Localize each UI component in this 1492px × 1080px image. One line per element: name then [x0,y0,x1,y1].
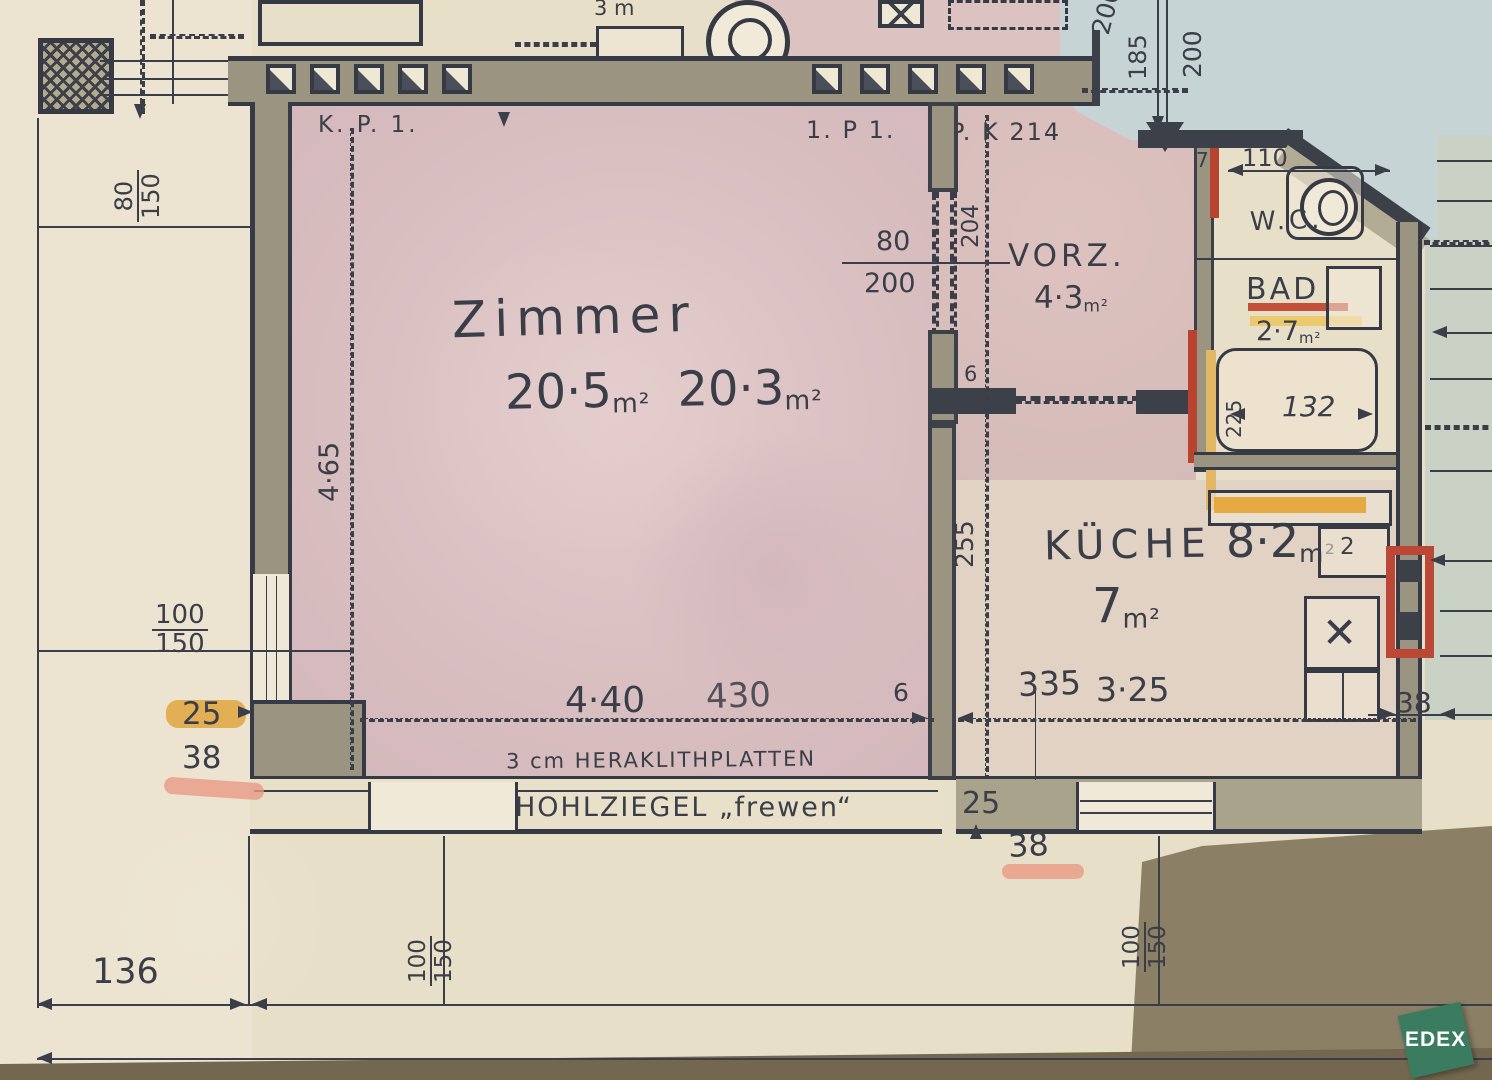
zimmer-area1-unit: m² [612,388,651,420]
arrow-right-icon [1358,408,1373,420]
arrow-down-icon [134,104,146,119]
dim-150: 150 [152,629,208,658]
wall-label-1p1: 1. P 1. [806,116,896,144]
dim-136: 136 [92,952,159,992]
kueche-width-dim-line [958,718,1416,722]
dim-kueche-335: 335 [1017,663,1081,704]
dim-ext-line [1158,836,1160,1006]
arrow-left-icon [37,1052,52,1064]
zimmer-area2-value: 20·3 [677,360,785,418]
radiator-cell [1398,612,1420,640]
wash-stairs-green [1425,238,1492,720]
window-pier-icon [266,64,296,94]
arrow-left-icon [1440,708,1455,720]
zimmer-width-dim-line [360,718,934,722]
balcony-line [100,94,230,96]
dim-wall6-bottom: 6 [893,678,909,707]
window-bottom-right [1076,782,1216,830]
window-pier-icon [1004,64,1034,94]
window-left-pane [266,576,267,700]
dim-left-80-150: 80 150 [112,170,164,222]
wall-red-highlight [1210,138,1219,218]
dim-vorz-255: 255 [950,520,979,568]
window-pane-line [1080,812,1212,814]
upper-furniture [948,0,1068,30]
window-pier-icon [354,64,384,94]
cabinet-divider [1342,672,1344,720]
wall-bad-bottom [1194,452,1420,470]
dim-100: 100 [405,939,431,983]
dim-bottom-left-100-150: 100 150 [406,936,456,986]
stair-tread [1430,288,1492,290]
note-hohlziegel: HOHLZIEGEL „frewen“ [515,792,853,823]
zimmer-area2-unit: m² [784,385,823,417]
door-dim-line [842,262,1010,264]
stair-tread [1437,200,1492,202]
dim-left-38: 38 [182,740,221,776]
dim-line-80-150 [37,226,253,228]
window-pier-icon [310,64,340,94]
dim-ext-left [37,118,39,1008]
counter-yellow-highlight [1214,497,1366,513]
window-pier-icon [442,64,472,94]
vorz-area-unit: m² [1083,297,1108,317]
dim-left-100-150: 100 150 [152,602,208,659]
arrow-right-icon [238,706,253,718]
room-kueche-label: KÜCHE [1044,521,1212,570]
kitchen-door-dash [1016,396,1142,404]
dim-top-200b: 200 [1178,30,1207,78]
stair-tread [1430,470,1492,472]
wall-yellow-highlight [1206,350,1216,510]
arrow-left-icon [1432,326,1447,338]
note-heraklith: 3 cm HERAKLITHPLATTEN [506,747,816,774]
dim-ext-line [1166,0,1168,126]
window-left-pane [276,576,277,700]
window-pier-icon [812,64,842,94]
radiator-cell [1398,560,1420,582]
arrow-left-icon [1230,408,1245,420]
room-zimmer-areas: 20·5m² 20·3m² [505,359,824,421]
wash-stairs-green-top [1437,135,1492,245]
floor-plan: K K. P. 1. 1. P 1. P. K 214 3 m 3 cm HER… [0,0,1492,1080]
overall-dim-line-2 [37,1058,1492,1060]
dim-zimmer-440: 4·40 [565,680,645,721]
dim-mid-25: 25 [962,786,1000,821]
dim-wall6-top: 6 [964,362,977,386]
dim-top-185: 185 [1124,34,1152,80]
upper-outline-dash [1082,88,1188,93]
dim-wc-110: 110 [1242,144,1288,172]
dim-150: 150 [430,936,456,986]
room-kueche-area2: 7m² [1092,578,1161,635]
dim-ext-line [1035,690,1036,780]
arrow-right-icon [1375,164,1390,176]
wall-stub-t [928,388,1016,414]
chimney-pier-hatch-icon [38,38,114,114]
dim-150: 150 [1144,922,1170,972]
balcony-line [100,60,230,62]
arrow-right-icon [912,712,927,724]
dim-ext-line [1157,0,1159,126]
dim-150: 150 [137,170,164,222]
window-pane-line [1080,800,1212,802]
wall-stub-bad [1136,390,1196,414]
stair-tread [1430,245,1492,247]
upper-dash-line [150,34,244,39]
kueche-area2-unit: m² [1123,604,1161,635]
upper-dash-line [515,42,596,47]
drain-funnel-icon [1146,122,1184,152]
window-pier-icon [398,64,428,94]
stair-tread [1440,560,1492,562]
arrow-left-icon [1228,164,1243,176]
room-bad-area: 2·7m² [1256,316,1321,347]
stair-tread [1440,655,1492,657]
edex-logo-text: EDEX [1405,1028,1466,1052]
dim-vorz-204: 204 [958,204,984,248]
dim-bottom-right-100-150: 100 150 [1120,922,1170,972]
wc-bad-divider [1196,258,1418,260]
shower-box [1326,266,1382,330]
dim-left-25: 25 [182,696,221,732]
zimmer-inner-dash [350,128,354,770]
shaft-x-icon [878,0,924,28]
arrow-up-icon [970,824,982,839]
wall-red-highlight [1188,330,1197,460]
dim-ext-line [248,836,250,1006]
window-pier-icon [860,64,890,94]
door-opening-dash [932,192,939,336]
wall-middle-top [928,102,958,192]
window-pier-icon [908,64,938,94]
stair-tread [1430,378,1492,380]
dim-mid-38: 38 [1007,825,1050,865]
room-vorz-label: VORZ. [1008,238,1126,274]
dim-door-80: 80 [876,226,910,257]
arrow-left-icon [1430,554,1445,566]
wall-middle-bottom [928,424,956,780]
room-wc-label: W.C. [1249,205,1323,238]
dim-door-200: 200 [864,268,916,299]
dim-100: 100 [1119,925,1145,969]
door-marker-icon [498,112,510,127]
dim-wc-7: 7 [1196,148,1209,172]
stair-dash [1425,425,1492,430]
arrow-left-icon [37,998,52,1010]
bad-area-unit: m² [1299,329,1321,347]
dim-bathtub-132: 132 [1282,390,1335,423]
zimmer-area1-value: 20·5 [505,363,613,421]
vorz-area-value: 4·3 [1034,280,1083,316]
arrow-right-icon [1380,708,1395,720]
window-bottom-left [368,782,518,830]
dim-100: 100 [155,600,205,630]
wall-left [250,102,292,574]
wall-label-top-partial: 3 m [594,0,635,20]
arrow-right-icon [230,998,245,1010]
stair-tread [1437,160,1492,162]
dim-sink-2: 2 [1340,534,1355,560]
dim-zimmer-430: 430 [705,675,771,717]
window-pier-icon [956,64,986,94]
bad-area-value: 2·7 [1256,316,1299,347]
upper-ext-line [140,0,145,114]
vorz-axis-dash [985,115,989,781]
kueche-area2-value: 7 [1092,578,1123,634]
stove-x-mark: ✕ [1322,608,1357,657]
dim-kueche-325: 3·25 [1096,670,1169,709]
door-opening-dash [950,192,957,336]
room-vorz-area: 4·3m² [1034,280,1109,317]
balcony-line [100,78,230,80]
pink-underline [1002,864,1084,879]
wall-label-pk214: P. K 214 [950,118,1061,146]
dim-80: 80 [110,181,138,212]
room-zimmer-label: Zimmer [451,285,697,349]
wc-dim-line [1228,170,1390,172]
dim-zimmer-465: 4·65 [314,442,345,502]
window-left [250,574,292,702]
upper-furniture [258,0,423,46]
stair-tread [1445,332,1492,334]
stair-tread [1440,610,1492,612]
upper-ext-line [172,0,174,104]
wall-label-kp1: K. P. 1. [318,112,419,138]
room-bad-label: BAD [1246,272,1319,307]
wall-band-step [1092,30,1100,106]
arrow-left-icon [252,998,267,1010]
